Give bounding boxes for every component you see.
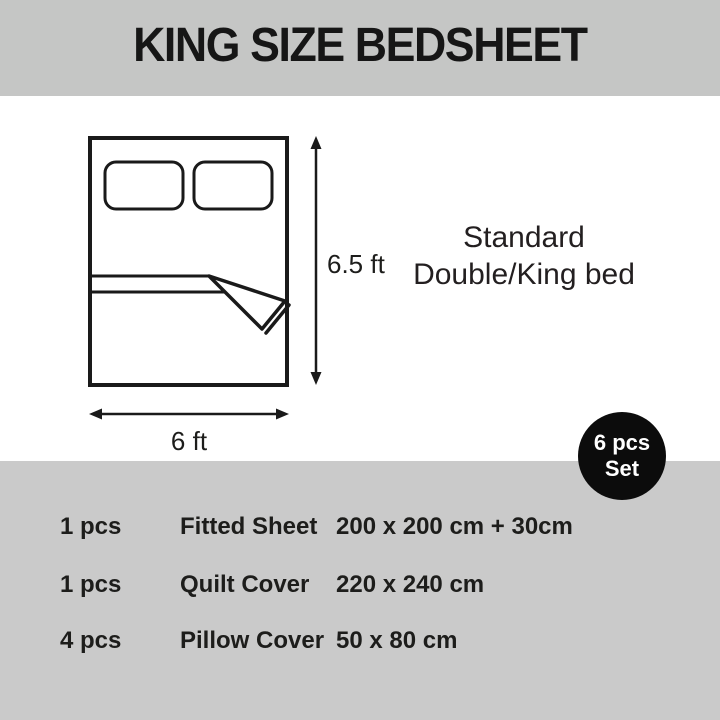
pillow-left: [105, 162, 183, 209]
table-row: 1 pcs Quilt Cover 220 x 240 cm: [0, 571, 720, 599]
caption-line-1: Standard: [398, 219, 650, 256]
height-arrow-icon: [311, 136, 322, 385]
header-banner: KING SIZE BEDSHEET: [0, 0, 720, 96]
height-label: 6.5 ft: [327, 249, 385, 280]
item-cell: Fitted Sheet: [180, 513, 317, 541]
bed-type-caption: Standard Double/King bed: [398, 219, 650, 293]
qty-cell: 4 pcs: [60, 627, 121, 655]
badge-line-1: 6 pcs: [594, 430, 650, 456]
item-cell: Pillow Cover: [180, 627, 324, 655]
width-label: 6 ft: [90, 426, 288, 457]
size-cell: 220 x 240 cm: [336, 571, 484, 599]
width-arrow-icon: [89, 409, 289, 420]
caption-line-2: Double/King bed: [398, 256, 650, 293]
pillow-right: [194, 162, 272, 209]
item-cell: Quilt Cover: [180, 571, 309, 599]
product-infographic: KING SIZE BEDSHEET 6.5 ft 6 ft: [0, 0, 720, 720]
size-cell: 200 x 200 cm + 30cm: [336, 513, 573, 541]
table-row: 1 pcs Fitted Sheet 200 x 200 cm + 30cm: [0, 513, 720, 541]
size-cell: 50 x 80 cm: [336, 627, 457, 655]
qty-cell: 1 pcs: [60, 513, 121, 541]
set-table: 1 pcs Fitted Sheet 200 x 200 cm + 30cm 1…: [0, 461, 720, 720]
qty-cell: 1 pcs: [60, 571, 121, 599]
page-title: KING SIZE BEDSHEET: [133, 18, 587, 79]
table-row: 4 pcs Pillow Cover 50 x 80 cm: [0, 627, 720, 655]
